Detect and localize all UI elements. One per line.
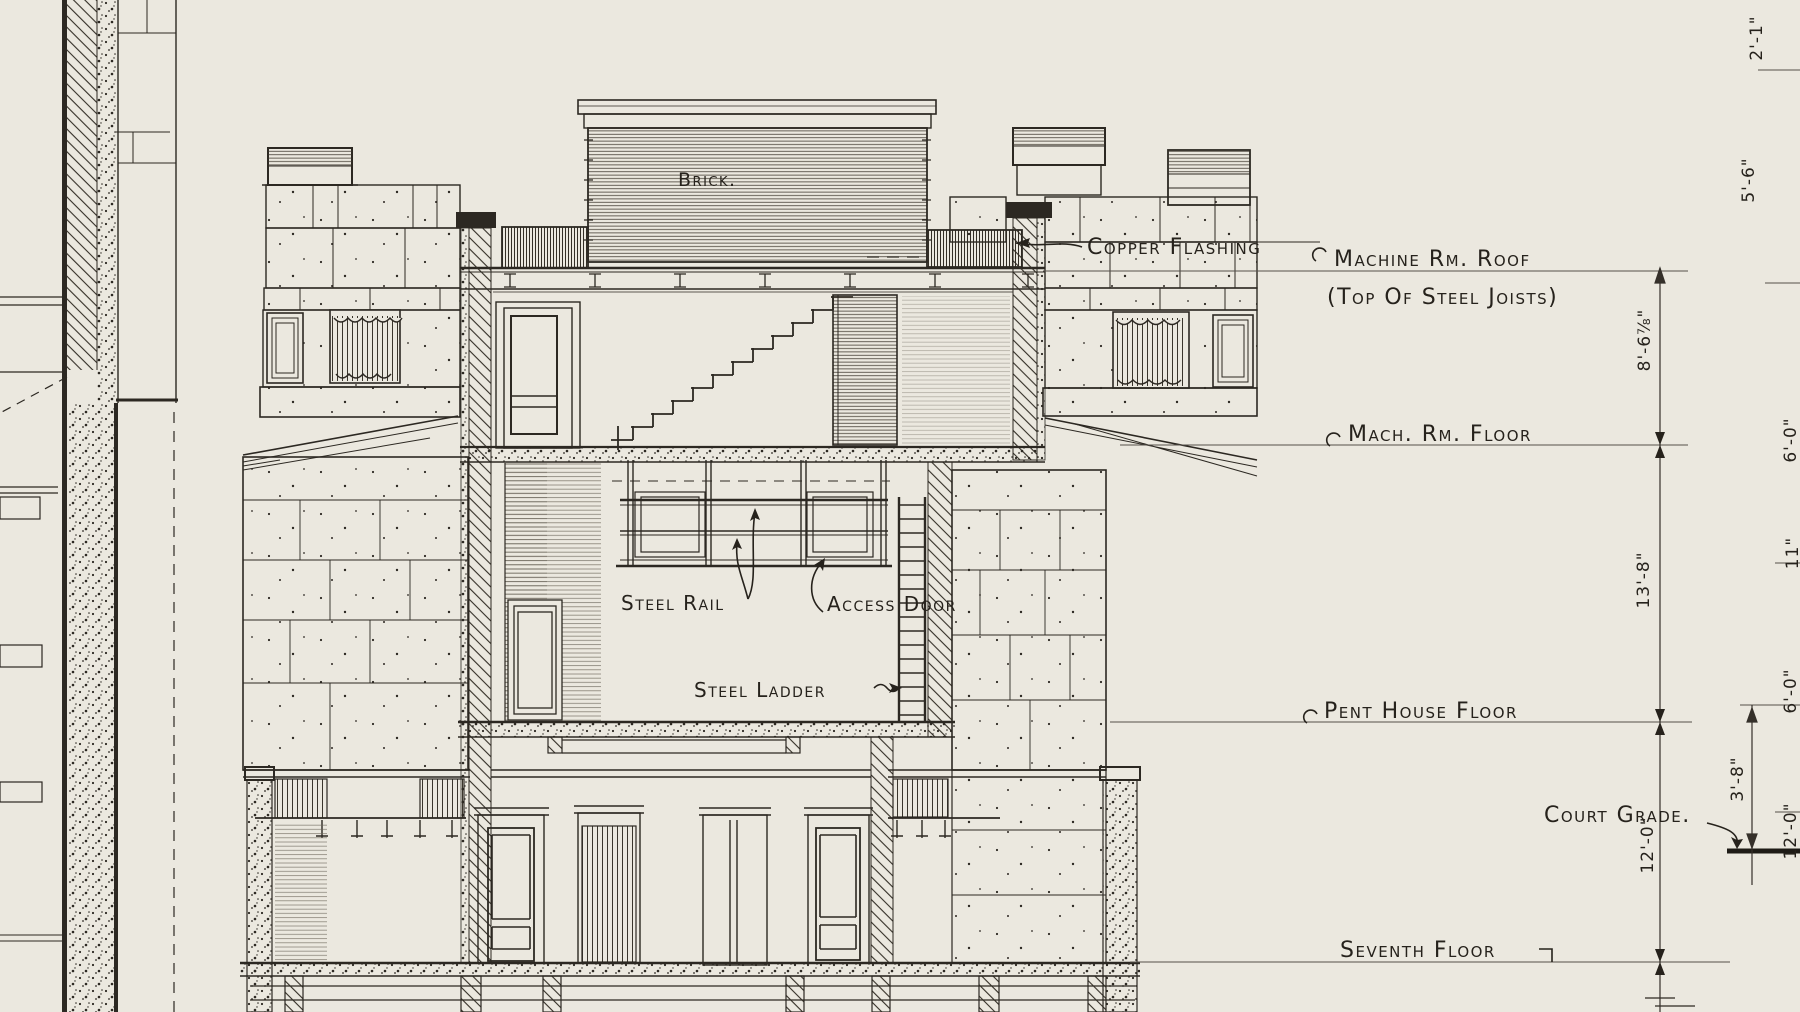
dim-edge-mid-b: 11" bbox=[1783, 537, 1800, 569]
label-steel-rail: Steel Rail bbox=[621, 591, 725, 615]
dim-edge-mid-a: 6'-0" bbox=[1781, 417, 1800, 462]
label-court-grade: Court Grade. bbox=[1544, 803, 1691, 828]
below-slab-framing bbox=[250, 976, 1695, 1012]
dim-edge-lower: 12'-0" bbox=[1781, 802, 1800, 859]
label-mach-rm-floor: Mach. Rm. Floor bbox=[1348, 422, 1532, 447]
dim-edge-top: 2'-1" bbox=[1747, 15, 1767, 60]
dim-edge-upper: 5'-6" bbox=[1739, 157, 1759, 202]
steel-rail-assembly bbox=[612, 460, 892, 567]
dim-pent-to-grade: 3'-8" bbox=[1728, 756, 1748, 801]
blueprint-sheet: Brick. Copper Flashing Machine Rm. Roof … bbox=[0, 0, 1800, 1012]
stair-steps bbox=[611, 296, 853, 450]
seventh-floor-doors bbox=[474, 806, 873, 965]
dim-roof-to-floor: 8'-6⅞" bbox=[1635, 309, 1655, 372]
label-top-of-steel-joists: (Top Of Steel Joists) bbox=[1327, 285, 1558, 310]
steel-joist-symbols bbox=[504, 274, 1034, 287]
label-brick: Brick. bbox=[678, 169, 737, 191]
left-tower bbox=[243, 148, 470, 1012]
section-drawing: Brick. Copper Flashing Machine Rm. Roof … bbox=[0, 0, 1800, 1012]
dim-edge-mid-c: 6'-0" bbox=[1781, 668, 1800, 713]
machine-room-door bbox=[496, 302, 580, 448]
label-steel-ladder: Steel Ladder bbox=[694, 678, 826, 702]
dimension-lines bbox=[1655, 268, 1757, 1012]
label-access-door: Access Door bbox=[827, 592, 957, 616]
label-seventh-floor: Seventh Floor bbox=[1340, 938, 1496, 963]
dim-floor-to-pent: 13'-8" bbox=[1634, 551, 1654, 608]
label-pent-house-floor: Pent House Floor bbox=[1324, 699, 1518, 724]
penthouse-side-door bbox=[508, 600, 562, 720]
dim-pent-to-seventh: 12'-0" bbox=[1638, 816, 1658, 873]
label-machine-rm-roof: Machine Rm. Roof bbox=[1334, 247, 1531, 272]
left-party-wall-section bbox=[0, 0, 178, 1012]
label-copper-flashing: Copper Flashing bbox=[1087, 235, 1261, 260]
